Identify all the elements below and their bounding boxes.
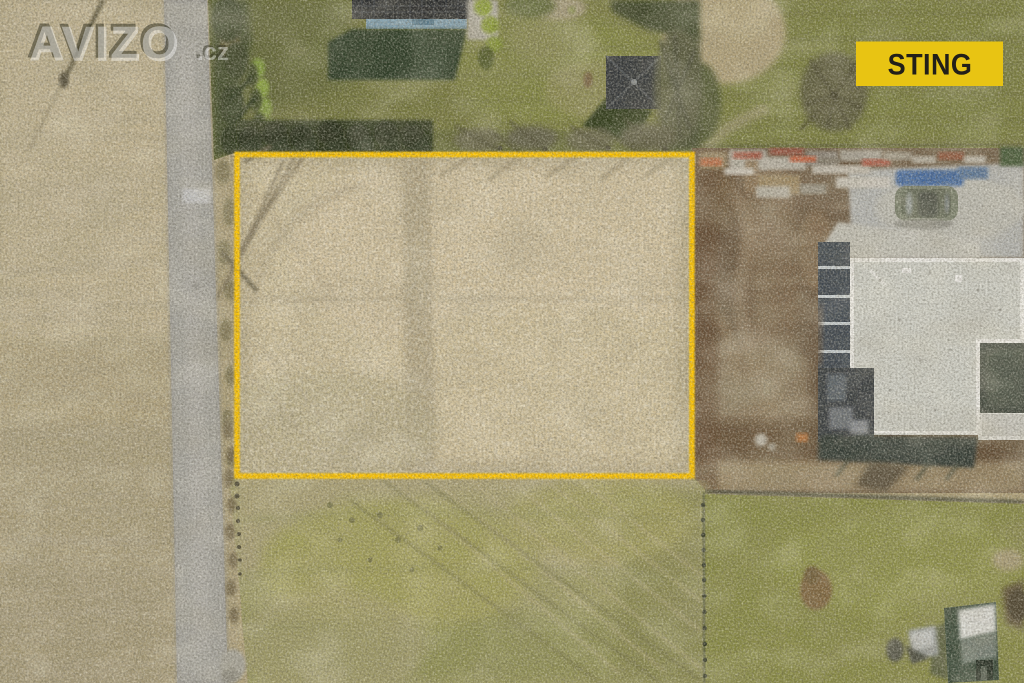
svg-text:STING: STING <box>888 48 973 82</box>
svg-text:AVIZO: AVIZO <box>30 17 180 70</box>
svg-text:.cz: .cz <box>197 39 229 66</box>
